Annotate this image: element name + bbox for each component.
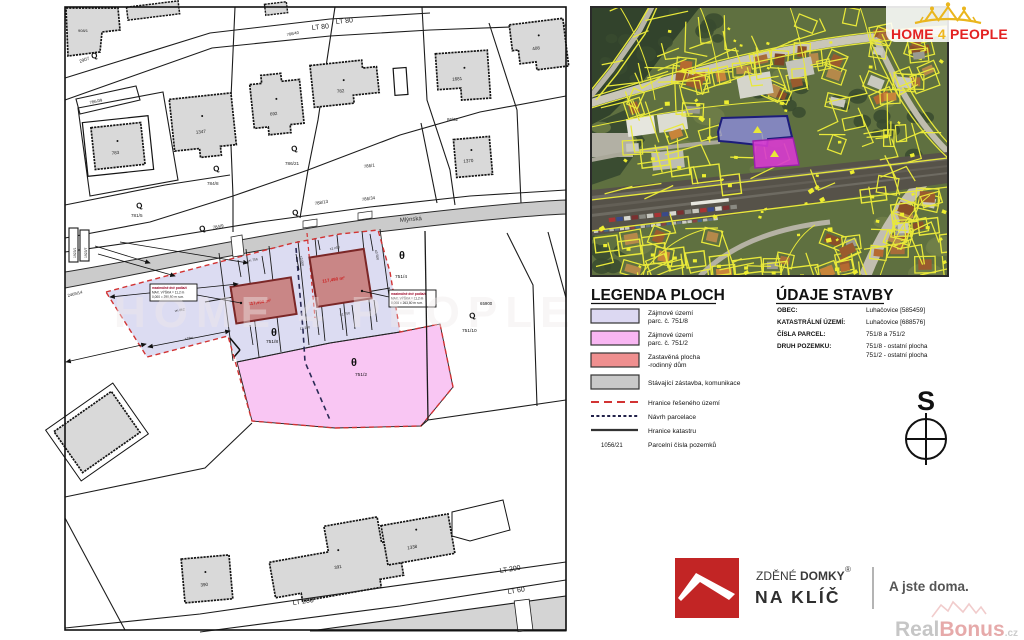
svg-text:751/4: 751/4 (395, 274, 407, 280)
svg-text:ČÍSLA PARCEL:: ČÍSLA PARCEL: (777, 329, 826, 338)
svg-text:®: ® (845, 565, 851, 574)
svg-text:781/5: 781/5 (131, 213, 143, 218)
svg-text:751/2 - ostatní plocha: 751/2 - ostatní plocha (866, 352, 928, 359)
svg-text:θ: θ (271, 327, 277, 339)
svg-text:1056/21: 1056/21 (601, 443, 623, 449)
svg-text:Hranice katastru: Hranice katastru (648, 428, 696, 435)
svg-text:HOME 4 PEOPLE: HOME 4 PEOPLE (114, 288, 577, 337)
svg-text:751/8: 751/8 (266, 339, 278, 345)
svg-text:Návrh parcelace: Návrh parcelace (648, 414, 696, 421)
svg-text:Stávající zástavba, komunikace: Stávající zástavba, komunikace (648, 380, 741, 387)
svg-text:751/8 - ostatní plocha: 751/8 - ostatní plocha (866, 343, 928, 350)
svg-text:86/32: 86/32 (447, 117, 459, 122)
svg-text:S: S (917, 386, 935, 416)
svg-text:Zájmové území: Zájmové území (648, 332, 693, 339)
svg-text:DRUH POZEMKU:: DRUH POZEMKU: (777, 343, 831, 350)
svg-text:1370: 1370 (463, 158, 474, 164)
svg-text:1923/1: 1923/1 (73, 248, 77, 258)
svg-text:908/1: 908/1 (78, 28, 89, 33)
svg-text:782: 782 (337, 88, 345, 94)
svg-text:Parcelní čísla pozemků: Parcelní čísla pozemků (648, 441, 716, 449)
svg-text:ÚDAJE STAVBY: ÚDAJE STAVBY (776, 286, 894, 304)
svg-text:751/2: 751/2 (355, 372, 367, 378)
svg-text:HOME 4 PEOPLE: HOME 4 PEOPLE (891, 26, 1008, 42)
svg-text:390: 390 (200, 582, 208, 588)
svg-text:Zastavěná plocha: Zastavěná plocha (648, 354, 700, 361)
svg-text:784/8: 784/8 (207, 181, 219, 186)
svg-text:θ: θ (351, 357, 357, 369)
svg-text:1923/7: 1923/7 (84, 248, 88, 258)
svg-text:408: 408 (532, 45, 541, 51)
svg-text:Hranice řešeného území: Hranice řešeného území (648, 400, 720, 407)
svg-text:OBEC:: OBEC: (777, 307, 798, 314)
svg-text:751/10: 751/10 (462, 328, 477, 334)
svg-text:ZDĚNÉ DOMKY: ZDĚNÉ DOMKY (756, 568, 845, 583)
svg-text:A jste doma.: A jste doma. (889, 579, 969, 594)
svg-text:RealBonus.cz: RealBonus.cz (895, 618, 1018, 640)
svg-text:parc. č. 751/2: parc. č. 751/2 (648, 340, 688, 347)
svg-text:751/8 a 751/2: 751/8 a 751/2 (866, 331, 906, 338)
svg-text:783: 783 (111, 150, 119, 156)
svg-text:692: 692 (270, 111, 278, 117)
svg-text:786/21: 786/21 (285, 161, 299, 166)
svg-text:θ: θ (399, 250, 405, 262)
svg-text:Luhačovice [688576]: Luhačovice [688576] (866, 319, 925, 326)
svg-text:KATASTRÁLNÍ ÚZEMÍ:: KATASTRÁLNÍ ÚZEMÍ: (777, 317, 845, 326)
svg-text:65900: 65900 (480, 301, 493, 306)
svg-text:Luhačovice [585459]: Luhačovice [585459] (866, 307, 925, 314)
svg-text:Zájmové území: Zájmové území (648, 310, 693, 317)
svg-text:LEGENDA PLOCH: LEGENDA PLOCH (591, 287, 725, 304)
svg-text:-rodinný dům: -rodinný dům (648, 361, 687, 369)
svg-text:NA KLÍČ: NA KLÍČ (755, 586, 841, 607)
svg-text:parc. č. 751/8: parc. č. 751/8 (648, 318, 688, 325)
svg-text:1681: 1681 (452, 76, 463, 82)
